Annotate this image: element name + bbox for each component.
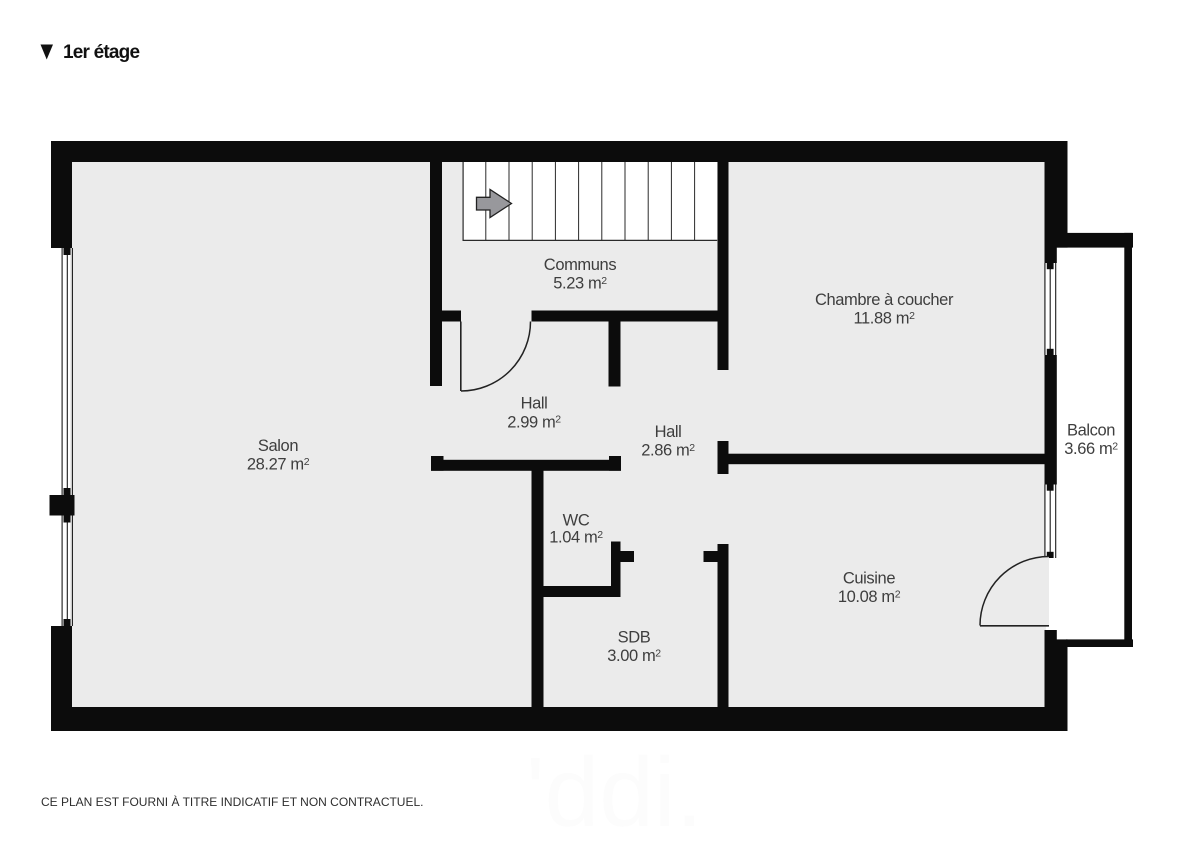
- svg-text:1er étage: 1er étage: [63, 42, 139, 63]
- svg-text:WC: WC: [563, 512, 590, 530]
- svg-text:11.88 m2: 11.88 m2: [853, 310, 915, 328]
- svg-text:10.08 m2: 10.08 m2: [838, 588, 901, 606]
- svg-text:Cuisine: Cuisine: [843, 570, 895, 588]
- svg-text:Hall: Hall: [521, 395, 548, 413]
- svg-text:5.23 m2: 5.23 m2: [553, 275, 607, 293]
- svg-text:SDB: SDB: [618, 629, 651, 647]
- svg-text:Chambre à coucher: Chambre à coucher: [815, 291, 954, 309]
- svg-text:Balcon: Balcon: [1067, 422, 1115, 440]
- svg-text:Communs: Communs: [544, 256, 617, 274]
- svg-text:Hall: Hall: [655, 423, 682, 441]
- svg-text:2.99 m2: 2.99 m2: [507, 413, 561, 431]
- svg-text:28.27 m2: 28.27 m2: [247, 456, 310, 474]
- svg-text:'ddi.: 'ddi.: [526, 737, 703, 847]
- svg-text:CE PLAN EST FOURNI À TITRE IND: CE PLAN EST FOURNI À TITRE INDICATIF ET …: [41, 794, 424, 809]
- svg-text:3.66 m2: 3.66 m2: [1064, 440, 1118, 458]
- svg-text:2.86 m2: 2.86 m2: [641, 442, 695, 460]
- svg-text:3.00 m2: 3.00 m2: [607, 647, 661, 665]
- svg-text:1.04 m2: 1.04 m2: [549, 529, 603, 547]
- svg-text:Salon: Salon: [258, 437, 298, 455]
